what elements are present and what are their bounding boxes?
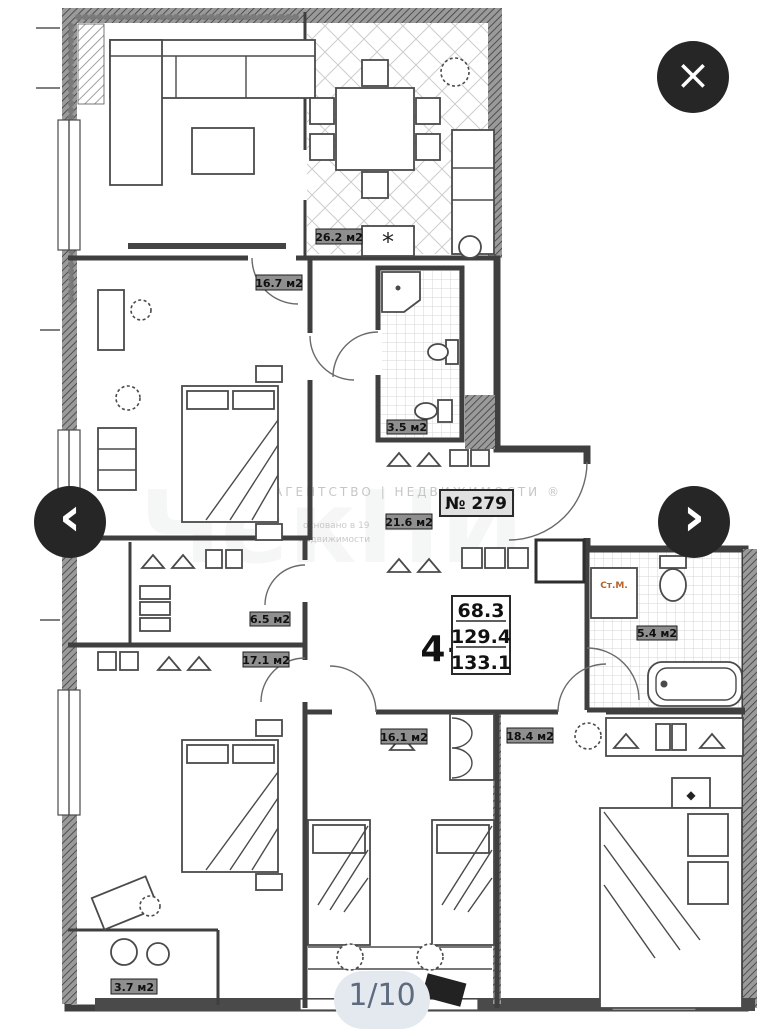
washing-machine-label: Ст.М. <box>600 581 628 591</box>
stool <box>147 943 169 965</box>
chair <box>140 896 160 916</box>
storage-box <box>485 548 505 568</box>
photo-counter: 1/10 <box>334 971 430 1029</box>
room-label-bedroom2-text: 17.1 м2 <box>242 654 290 667</box>
room-label-bedroom1-text: 16.7 м2 <box>255 277 303 290</box>
sink <box>459 236 481 258</box>
room-label-hall: 21.6 м2 <box>385 514 433 529</box>
storage-box <box>98 652 116 670</box>
storage-box <box>450 450 468 466</box>
toilet <box>438 400 452 422</box>
pillow <box>688 814 728 856</box>
chevron-left-icon: ‹ <box>59 490 81 544</box>
room-label-bedroom4-text: 18.4 м2 <box>506 730 554 743</box>
storage-box <box>226 550 242 568</box>
bedroom3-furniture <box>308 714 494 1007</box>
pillow <box>233 745 274 763</box>
chair <box>310 98 334 124</box>
room-label-bathroom1: 3.5 м2 <box>387 420 427 434</box>
room-label-bathroom1-text: 3.5 м2 <box>387 421 427 434</box>
chair <box>362 172 388 198</box>
storage-box <box>672 724 686 750</box>
pillow <box>313 825 365 853</box>
shelf <box>140 618 170 631</box>
bedroom2-furniture <box>92 652 282 930</box>
plant-icon <box>575 723 601 749</box>
room-label-storage: 3.7 м2 <box>111 979 157 994</box>
window <box>58 690 80 815</box>
washing-machine <box>591 568 637 618</box>
floor-plan-image: ЧекНИ АГЕНТСТВО | НЕДВИЖИМОСТИ ® основан… <box>0 0 763 1024</box>
storage-box <box>656 724 670 750</box>
storage-box <box>120 652 138 670</box>
shelf <box>98 428 136 490</box>
chair <box>131 300 151 320</box>
kitchen-counter <box>452 130 494 254</box>
pillow <box>688 862 728 904</box>
room-label-bathroom2: 5.4 м2 <box>637 626 677 640</box>
storage-box <box>462 548 482 568</box>
next-photo-button[interactable]: › <box>658 486 730 558</box>
shelf <box>140 602 170 615</box>
chair <box>416 98 440 124</box>
storage-box <box>206 550 222 568</box>
nightstand <box>256 366 282 382</box>
dining-table <box>336 88 414 170</box>
watermark-line1: основано в 19 <box>303 521 370 531</box>
photo-counter-text: 1/10 <box>348 981 415 1011</box>
close-button[interactable]: × <box>657 41 729 113</box>
chair <box>310 134 334 160</box>
unit-area: 129.4 <box>451 626 511 648</box>
cabinet <box>536 540 584 582</box>
room-label-bedroom2: 17.1 м2 <box>242 652 290 667</box>
coffee-table <box>192 128 254 174</box>
storage-box <box>471 450 489 466</box>
watermark-agency: АГЕНТСТВО | НЕДВИЖИМОСТИ ® <box>274 485 562 499</box>
unit-living-area: 68.3 <box>458 600 505 622</box>
chair <box>416 134 440 160</box>
hanger-icon <box>188 657 210 670</box>
pillow <box>187 391 228 409</box>
storage-room-furniture <box>111 939 169 965</box>
room-label-storage-text: 3.7 м2 <box>114 981 154 994</box>
tv <box>128 243 286 249</box>
close-icon: × <box>675 54 710 96</box>
window <box>58 120 80 250</box>
room-label-wardrobe: 6.5 м2 <box>250 612 290 626</box>
room-label-bedroom1: 16.7 м2 <box>255 275 303 290</box>
plant-icon <box>116 386 140 410</box>
pillow <box>187 745 228 763</box>
bedroom4-furniture: ◆ <box>575 718 743 1008</box>
living-room-furniture <box>110 40 315 249</box>
pillow <box>233 391 274 409</box>
toilet-tank <box>660 556 686 568</box>
plant-icon <box>441 58 469 86</box>
room-label-bathroom2-text: 5.4 м2 <box>637 627 677 640</box>
unit-total-area: 133.1 <box>451 652 511 674</box>
hanger-icon <box>388 453 410 466</box>
toilet <box>660 569 686 601</box>
room-label-bedroom3: 16.1 м2 <box>380 729 428 744</box>
nightstand <box>256 874 282 890</box>
hanger-icon <box>418 453 440 466</box>
office-chair <box>417 944 443 970</box>
chevron-right-icon: › <box>683 490 705 544</box>
room-label-bedroom4: 18.4 м2 <box>506 728 554 743</box>
chair <box>362 60 388 86</box>
desk <box>98 290 124 350</box>
room-label-hall-text: 21.6 м2 <box>385 516 433 529</box>
bedroom1-furniture <box>98 290 282 540</box>
stove-icon: * <box>382 228 394 256</box>
shelf <box>140 586 170 599</box>
room-label-wardrobe-text: 6.5 м2 <box>250 613 290 626</box>
nightstand <box>256 524 282 540</box>
unit-number-badge: № 279 <box>440 490 513 516</box>
storage-box <box>508 548 528 568</box>
room-label-kitchen-text: 26.2 м2 <box>315 231 363 244</box>
prev-photo-button[interactable]: ‹ <box>34 486 106 558</box>
nightstand <box>256 720 282 736</box>
pillow <box>437 825 489 853</box>
room-label-kitchen: 26.2 м2 <box>315 229 363 244</box>
star-icon: ◆ <box>686 788 696 802</box>
hanger-icon <box>158 657 180 670</box>
office-chair <box>337 944 363 970</box>
unit-areas: 4+ 68.3 129.4 133.1 <box>420 596 511 674</box>
unit-number-text: № 279 <box>445 494 507 514</box>
stool <box>111 939 137 965</box>
room-label-bedroom3-text: 16.1 м2 <box>380 731 428 744</box>
